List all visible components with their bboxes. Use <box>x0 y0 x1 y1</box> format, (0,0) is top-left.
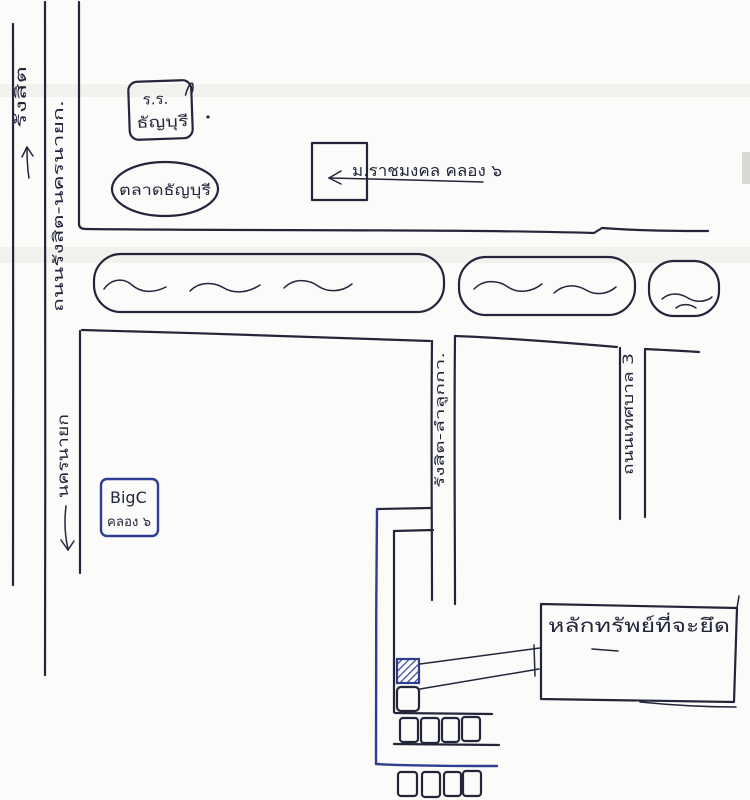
building-box <box>463 771 481 796</box>
building-box <box>400 718 418 742</box>
school-box-label-line2: ธัญบุรี <box>136 112 189 133</box>
university-label: ม.ราชมงคล คลอง ๖ <box>352 161 502 180</box>
building-box <box>398 772 417 796</box>
bigc-box: BigC คลอง ๖ <box>101 479 158 536</box>
scan-artifact <box>0 84 750 97</box>
ink-dot <box>206 115 209 118</box>
property-label: หลักทรัพย์ที่จะยึด <box>548 612 730 637</box>
bigc-label-line1: BigC <box>110 488 147 507</box>
direction-label-rangsit: รังสิต <box>12 66 30 128</box>
ink-dash <box>592 649 618 651</box>
up-arrow-icon <box>22 147 33 178</box>
scanned-sketch-page: รังสิต ถนนรังสิต-นครนายก. นครนายก <box>0 0 750 800</box>
thetsaban-road-label: ถนนเทศบาล 3 <box>621 353 637 475</box>
water-squiggle <box>104 280 712 308</box>
road-label-rangsit-nakhonnayok: ถนนรังสิต-นครนายก. <box>51 100 67 312</box>
scan-artifact <box>742 152 750 184</box>
building-box <box>422 772 440 797</box>
pointer-lines <box>420 645 540 689</box>
direction-label-nakhonnayok: นครนายก <box>54 414 72 498</box>
building-box <box>397 687 419 711</box>
side-road-label: รังสิต-ลำลูกกา. <box>432 352 448 488</box>
property-label-box: หลักทรัพย์ที่จะยึด <box>541 596 739 707</box>
building-box <box>442 718 459 742</box>
school-box-label-line1: ร.ร. <box>142 90 168 109</box>
building-box <box>444 772 461 796</box>
market-label: ตลาดธัญบุรี <box>119 182 211 199</box>
university-marker: ม.ราชมงคล คลอง ๖ <box>312 143 502 200</box>
building-boxes <box>397 687 481 797</box>
building-box <box>462 717 480 741</box>
bigc-label-line2: คลอง ๖ <box>107 515 151 530</box>
property-marker <box>397 659 419 683</box>
market-oval: ตลาดธัญบุรี <box>112 162 218 216</box>
hand-drawn-map-canvas: รังสิต ถนนรังสิต-นครนายก. นครนายก <box>0 0 750 800</box>
building-box <box>421 718 439 743</box>
canal-median <box>94 254 719 316</box>
down-arrow-icon <box>61 506 74 550</box>
